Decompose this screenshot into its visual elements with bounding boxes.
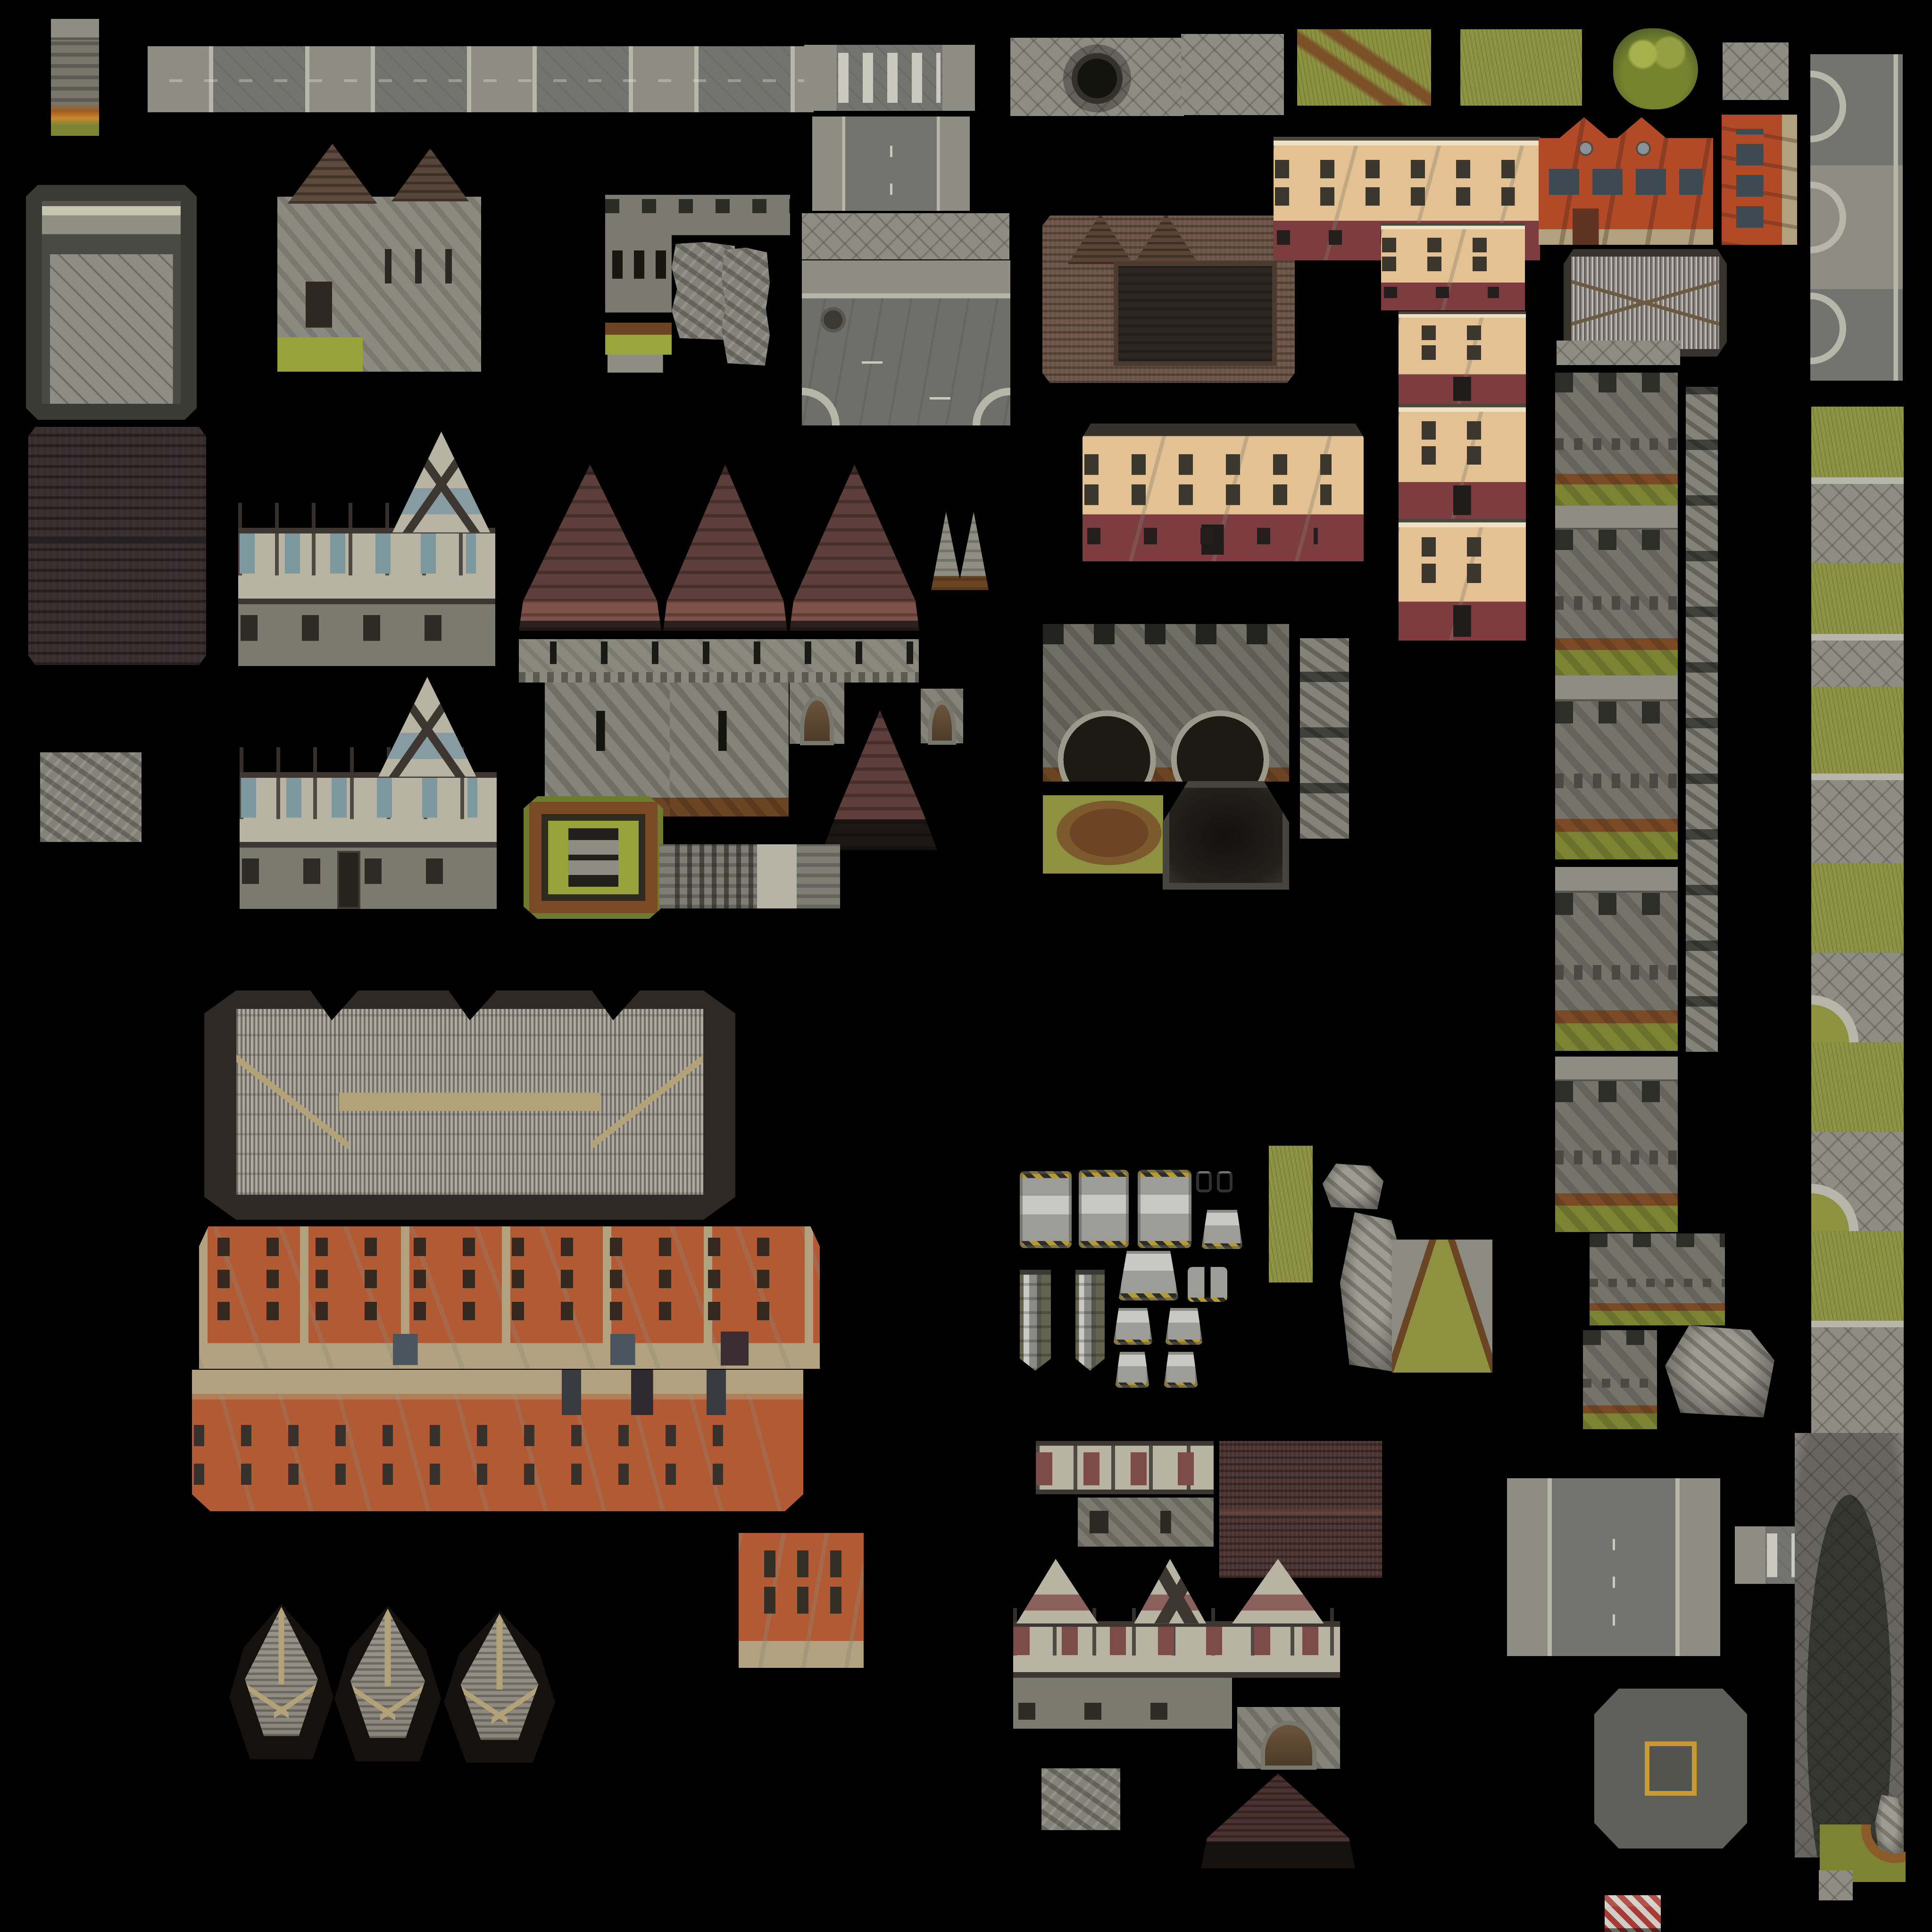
road-horizontal-long (148, 46, 814, 112)
tan-building-mid (1381, 223, 1525, 310)
red-tile-roof (1219, 1441, 1382, 1578)
factory-front (1539, 115, 1713, 245)
grass-road-ruts (1297, 29, 1431, 106)
concrete-panel-2 (1079, 1170, 1129, 1248)
roadside-cobble-3 (1811, 774, 1904, 863)
wall-top-strip (1557, 341, 1680, 365)
concrete-strip-pair (1188, 1267, 1227, 1302)
roadside-cobble-4 (1811, 1321, 1904, 1433)
city-wall-unit-2 (1555, 506, 1678, 675)
rock-trench (1392, 1240, 1492, 1373)
cobble-tile-small (1723, 42, 1789, 100)
pothole-road (1010, 38, 1184, 116)
curtain-tower-wall-2 (670, 683, 789, 816)
roadside-cobble-curve-1 (1811, 953, 1904, 1042)
texture-atlas (0, 0, 1932, 1932)
twin-stone-cones (931, 512, 989, 590)
roadside-cobble-curve-2 (1811, 1132, 1904, 1231)
concrete-chip-1 (1196, 1171, 1212, 1192)
rubble-fragment-2 (722, 248, 770, 366)
rubble-strip-right (1686, 387, 1718, 1052)
stone-wall-fragment (1078, 1498, 1214, 1547)
wall-with-door-1 (790, 683, 844, 744)
roadside-grass-6 (1811, 1231, 1904, 1321)
concrete-trapezoid-mid-2 (1165, 1308, 1203, 1345)
gable-rooftop-3 (444, 1611, 555, 1763)
tan-tower-upper (1399, 311, 1526, 404)
gate-tower-top (26, 185, 197, 420)
roadside-cobble-2 (1811, 634, 1904, 687)
moss-well-planter (524, 796, 663, 919)
city-wall-unit-4 (1555, 867, 1678, 1051)
concrete-trapezoid-mid-1 (1113, 1308, 1153, 1345)
halftimber-house-2 (240, 677, 497, 909)
tan-ruin-building (1083, 424, 1364, 561)
grass-dirt-patch (1043, 795, 1163, 874)
row-houses-gabled (1013, 1559, 1340, 1729)
moss-wall-strip (51, 19, 99, 136)
concrete-panel-3 (1138, 1170, 1191, 1248)
stone-keep (277, 142, 481, 372)
dark-tile-roof-building (28, 427, 206, 665)
concrete-trapezoid-small-1 (1115, 1352, 1149, 1388)
plaza-junction (802, 260, 1010, 425)
concrete-shield (1201, 1210, 1243, 1249)
battlement-slit-band (519, 639, 919, 683)
wall-small-piece (1583, 1330, 1657, 1429)
road-block-bottom (1507, 1478, 1720, 1656)
factory-side-wall (1722, 115, 1797, 245)
roadside-grass-1 (1811, 407, 1904, 477)
spire-roof-2 (663, 465, 787, 631)
orange-building-lower (192, 1370, 803, 1511)
sidewalk-band (802, 213, 1009, 259)
metal-pillar-1 (1020, 1270, 1051, 1371)
stone-chimney (1041, 1768, 1120, 1830)
orange-building-upper (199, 1226, 820, 1369)
city-wall-unit-5 (1555, 1057, 1678, 1232)
orange-ruin-fragment (739, 1533, 864, 1668)
road-corner-top-right (1810, 54, 1903, 381)
concrete-trapezoid-small-2 (1164, 1352, 1198, 1388)
dark-pyramid-roof (1201, 1774, 1355, 1868)
gable-rooftop-2 (334, 1606, 441, 1761)
concrete-trapezoid-wide (1118, 1251, 1179, 1300)
road-vertical-top (812, 117, 970, 211)
hazard-platform (1594, 1689, 1747, 1849)
roadside-grass-2 (1811, 563, 1904, 634)
small-stone-well (40, 752, 142, 842)
red-striped-barrier (1605, 1895, 1661, 1932)
metal-pillar-2 (1075, 1270, 1105, 1371)
rock-outcrop-small (1323, 1164, 1383, 1209)
great-arch-wall (1043, 624, 1289, 782)
roadside-grass-4 (1811, 863, 1904, 953)
city-wall-unit-1 (1555, 373, 1678, 506)
rubble-column (1300, 638, 1349, 839)
wall-rock-chunk (1665, 1325, 1774, 1417)
halftimber-house-1 (238, 432, 495, 666)
stone-grate-ramp (659, 844, 840, 908)
manor-roof-building (1042, 216, 1295, 383)
dark-stone-pool (1163, 781, 1289, 890)
barn-roof (204, 991, 735, 1220)
spire-roof-1 (519, 465, 661, 631)
spire-roof-3 (790, 465, 919, 631)
concrete-panel-1 (1020, 1171, 1072, 1248)
wall-with-door-2 (921, 689, 963, 743)
cobble-patch-top (1181, 34, 1284, 115)
tan-tower-lower (1399, 519, 1526, 641)
tree-top (1613, 28, 1698, 109)
roadside-grass-3 (1811, 687, 1904, 774)
cobble-bit-bottom (1819, 1870, 1853, 1900)
cobble-road-column (1795, 1433, 1904, 1857)
gable-rooftop-1 (229, 1604, 333, 1759)
crosswalk-road-top (804, 45, 975, 111)
tan-tower-middle (1399, 404, 1526, 519)
concrete-chip-2 (1217, 1171, 1232, 1192)
timber-wall-strip (1036, 1441, 1214, 1494)
grass-strip-vertical (1269, 1146, 1313, 1282)
roadside-cobble-1 (1811, 477, 1904, 563)
roadside-grass-5 (1811, 1042, 1904, 1132)
wall-corner-piece (1590, 1233, 1725, 1325)
grass-road-plain (1460, 29, 1582, 106)
city-wall-unit-3 (1555, 675, 1678, 859)
stone-door-wall (1237, 1707, 1340, 1769)
